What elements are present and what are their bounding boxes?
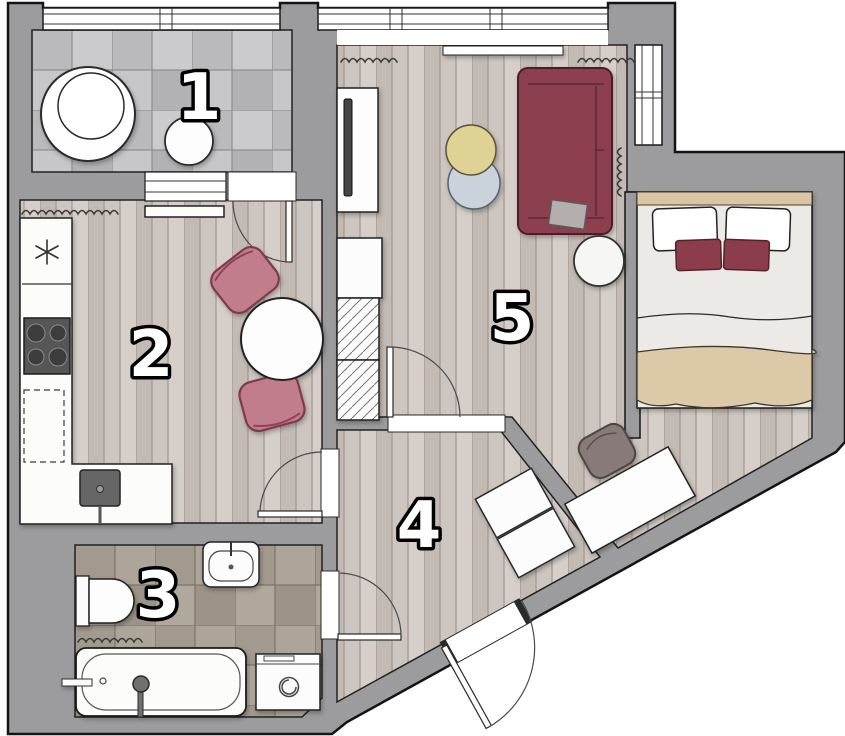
- sofa: [518, 68, 612, 234]
- room-label-loggia: 1: [177, 61, 222, 135]
- dining-table: [241, 298, 323, 380]
- tv: [344, 99, 352, 196]
- wash-basin: [203, 542, 259, 587]
- room-label-hallway: 4: [397, 489, 442, 563]
- pouf-yellow: [446, 125, 496, 175]
- window-loggia-top: [43, 8, 280, 30]
- floor-plan: 1 2 3 4 5: [0, 0, 845, 736]
- loggia-round-chair: [41, 67, 135, 161]
- pillow-accent: [723, 239, 769, 271]
- window-living-top: [318, 8, 608, 30]
- bathtub: [62, 648, 246, 717]
- side-table: [574, 236, 624, 286]
- room-label-bathroom: 3: [136, 559, 181, 633]
- stove: [24, 318, 70, 374]
- closet: [337, 238, 382, 420]
- windowsill-shelf: [145, 206, 224, 217]
- room-label-kitchen: 2: [129, 318, 174, 392]
- blanket: [637, 346, 816, 407]
- bed: [637, 192, 816, 408]
- washing-machine: [256, 654, 320, 710]
- window-living-right: [635, 45, 662, 145]
- window-kitchen-loggia: [145, 172, 226, 201]
- headboard: [637, 192, 812, 205]
- toilet: [76, 576, 134, 626]
- curtain-pelmet: [443, 46, 563, 55]
- sofa-cushion: [548, 200, 587, 230]
- room-label-living: 5: [490, 282, 535, 356]
- pillow-accent: [675, 239, 721, 271]
- floor-plan-svg: 1 2 3 4 5: [0, 0, 845, 736]
- window-recess-living: [337, 30, 608, 45]
- tv-cabinet: [337, 88, 378, 212]
